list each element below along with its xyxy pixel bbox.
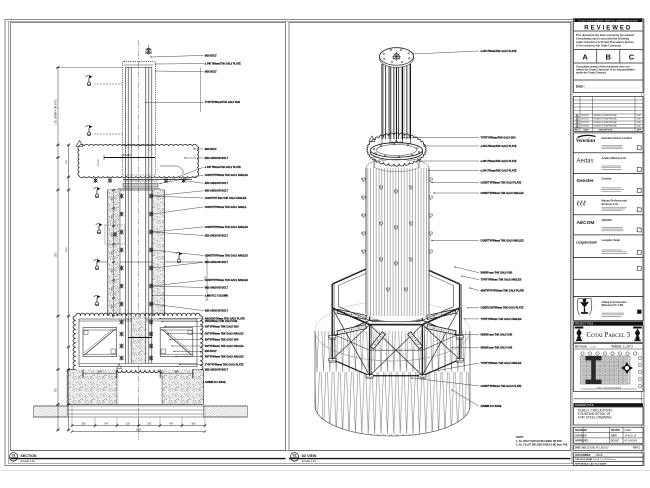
svg-text:50/TYP50mm THK GALV ANGLES: 50/TYP50mm THK GALV ANGLES (205, 333, 244, 336)
svg-text:1500: 1500 (56, 252, 58, 258)
svg-text:M16 ANCHOR BOLT: M16 ANCHOR BOLT (205, 234, 229, 237)
svg-text:02: 02 (293, 454, 297, 458)
svg-text:NOTE:: NOTE: (516, 435, 524, 439)
svg-text:315UB: 315UB (596, 455, 603, 457)
svg-text:Aedas: Aedas (577, 158, 594, 164)
svg-text:CONT/TYP50mm THK GALV PLATE: CONT/TYP50mm THK GALV PLATE (481, 385, 522, 388)
svg-text:a 300 750mmTHK GALV PLATE: a 300 750mmTHK GALV PLATE (481, 160, 517, 163)
svg-text:APP: APP (637, 129, 642, 132)
svg-text:PUBLIC CIRCULATION AREA: PUBLIC CIRCULATION AREA (597, 386, 622, 389)
svg-text:01: 01 (12, 454, 16, 458)
svg-text:Date :: Date : (576, 85, 585, 89)
svg-text:AECOM: AECOM (577, 220, 595, 226)
svg-text:50/TYP50mm THK GALV ANGLES: 50/TYP50mm THK GALV ANGLES (205, 345, 244, 348)
svg-text:DRAWN: DRAWN (611, 429, 620, 432)
svg-text:Venetian Orient Limited: Venetian Orient Limited (602, 136, 632, 140)
svg-text:13/07/15: 13/07/15 (581, 119, 590, 121)
svg-text:LWK: LWK (637, 119, 642, 121)
svg-text:50/50/5 mm THK GALV SHS: 50/50/5 mm THK GALV SHS (481, 347, 513, 350)
svg-text:50/50/5 mm THK GALV SHS: 50/50/5 mm THK GALV SHS (481, 333, 513, 336)
svg-text:CONT/TYP50mm THK GALV ANGLE: CONT/TYP50mm THK GALV ANGLE (205, 206, 247, 209)
svg-text:3: 3 (577, 122, 578, 124)
svg-text:1391 (VERIFY ON SITE): 1391 (VERIFY ON SITE) (56, 99, 58, 125)
svg-text:COTAI PARCEL 3: COTAI PARCEL 3 (586, 332, 630, 339)
svg-text:150x150mm THK GALV SHS: 150x150mm THK GALV SHS (205, 320, 238, 323)
svg-text:M16 ANCHOR BOLT: M16 ANCHOR BOLT (205, 182, 229, 185)
svg-text:DWG. NO.: DWG. NO. (575, 447, 587, 450)
svg-text:864: 864 (98, 371, 103, 374)
svg-text:1 : 1000: 1 : 1000 (589, 347, 597, 349)
svg-text:Consultant(s) and is accorded: Consultant(s) and is accorded the follow… (576, 36, 629, 40)
svg-text:3D VIEW: 3D VIEW (302, 454, 317, 458)
svg-text:TYP/TYP50mm THK GALV ANGLES: TYP/TYP50mm THK GALV ANGLES (481, 279, 522, 282)
svg-text:AS SHOWN: AS SHOWN (625, 440, 638, 443)
svg-text:A25MM R.C BASE: A25MM R.C BASE (481, 405, 502, 408)
svg-text:460/TYP/TYP50mm THK GALV PLATE: 460/TYP/TYP50mm THK GALV PLATE (481, 289, 525, 292)
svg-text:29/07/15: 29/07/15 (581, 122, 590, 124)
svg-text:DESCRIPTION: DESCRIPTION (599, 130, 613, 132)
svg-text:ISSUED FOR APPROVAL: ISSUED FOR APPROVAL (594, 114, 618, 117)
svg-text:M16 BOLT: M16 BOLT (205, 350, 217, 353)
svg-text:SCALE: SCALE (611, 440, 619, 443)
svg-text:AECOM: AECOM (602, 218, 613, 222)
svg-text:REV: REV (575, 130, 580, 132)
svg-text:50/TYP50mm THK GALV SHS: 50/TYP50mm THK GALV SHS (205, 339, 239, 342)
svg-text:LWKD: LWKD (625, 430, 632, 432)
svg-text:M16 ANCHOR BOLT: M16 ANCHOR BOLT (205, 261, 229, 264)
svg-text:B: B (605, 53, 611, 62)
svg-text:50/50/5 mm THK GALV SHS: 50/50/5 mm THK GALV SHS (481, 272, 513, 275)
svg-text:TYP/TYP50mm THK GALV ANGLES: TYP/TYP50mm THK GALV ANGLES (481, 362, 522, 365)
svg-text:under the Trade Contract.: under the Trade Contract. (576, 72, 607, 75)
svg-text:a 345 750mmTHK GALV PLATE: a 345 750mmTHK GALV PLATE (481, 50, 517, 53)
svg-text:Macau Professional: Macau Professional (602, 199, 627, 203)
svg-text:1: 1 (577, 115, 578, 117)
svg-text:5.4 for action by the Trade Co: 5.4 for action by the Trade Contractor. (576, 44, 622, 48)
svg-text:CONT/CONT50mm THK GALV PLATE: CONT/CONT50mm THK GALV PLATE (481, 307, 524, 310)
svg-text:REV C: REV C (633, 447, 641, 450)
svg-text:KEY PLAN: KEY PLAN (575, 346, 587, 349)
svg-text:This document has been revised: This document has been revised by the re… (576, 33, 634, 37)
svg-text:M16 ANCHOR BOLT: M16 ANCHOR BOLT (205, 157, 229, 160)
svg-text:Langdon Seah: Langdon Seah (602, 238, 621, 242)
svg-text:ISSUED FOR APPROVAL: ISSUED FOR APPROVAL (594, 121, 618, 124)
svg-text:CONT/TYP50mm THK GALV ANGLES: CONT/TYP50mm THK GALV ANGLES (205, 226, 248, 229)
svg-text:a 345 750mmTHK GALV PLATE: a 345 750mmTHK GALV PLATE (481, 145, 517, 148)
svg-text:SCALE 1:10: SCALE 1:10 (302, 459, 317, 463)
svg-text:CAD FILE NAME: CAD FILE NAME (575, 458, 593, 461)
svg-text:Services Ltd.: Services Ltd. (602, 202, 619, 206)
svg-text:(Macau) CO. LTD.: (Macau) CO. LTD. (602, 303, 624, 307)
svg-text:FOR STEEL DRAWING: FOR STEEL DRAWING (578, 415, 612, 419)
svg-text:50/TYP50mm THK GALV ANGLES: 50/TYP50mm THK GALV ANGLES (205, 356, 244, 359)
svg-text:1. ALL BOLT SHOULD BE FIXING O: 1. ALL BOLT SHOULD BE FIXING ON SITE. (516, 440, 563, 443)
svg-text:a 345 750mmTHK GALV PLATE: a 345 750mmTHK GALV PLATE (481, 169, 517, 172)
svg-text:DATE: DATE (611, 434, 618, 437)
svg-text:LWK: LWK (637, 122, 642, 124)
svg-text:LangdonSeah: LangdonSeah (576, 240, 597, 244)
svg-text:CONT/TYP50mm THK GALV PLATE: CONT/TYP50mm THK GALV PLATE (481, 181, 522, 184)
svg-text:TYP/TYP50mmTHK GALV SHS: TYP/TYP50mmTHK GALV SHS (205, 101, 241, 104)
svg-text:M16 ANCHOR BOLT: M16 ANCHOR BOLT (205, 286, 229, 289)
svg-text:TYP/TYP50mm THK GALV ANGLES: TYP/TYP50mm THK GALV ANGLES (481, 318, 522, 321)
svg-text:APPROVED: APPROVED (575, 440, 588, 443)
svg-text:CONT/TYP50mm THK GALV ANGLES: CONT/TYP50mm THK GALV ANGLES (481, 239, 524, 242)
svg-text:ISSUED FOR APPROVAL: ISSUED FOR APPROVAL (594, 125, 618, 128)
svg-text:CONT/TYP 50m THK GALV ANGLES: CONT/TYP 50m THK GALV ANGLES (205, 197, 247, 200)
svg-text:14-AUG-15: 14-AUG-15 (625, 434, 637, 437)
svg-text:a M20 R.C COLUMN: a M20 R.C COLUMN (205, 294, 228, 297)
svg-text:M16 BOLT: M16 BOLT (205, 148, 217, 151)
svg-text:M16 ANCHOR BOLT: M16 ANCHOR BOLT (205, 310, 229, 313)
svg-text:TYP/TYP50mm THK GALV PLATE: TYP/TYP50mm THK GALV PLATE (205, 363, 244, 366)
svg-text:M16 BOLT: M16 BOLT (205, 54, 217, 57)
svg-text:1000: 1000 (66, 247, 68, 253)
svg-text:CONT/TYP50mm THK GALV ANGLES: CONT/TYP50mm THK GALV ANGLES (205, 174, 248, 177)
svg-text:LWK: LWK (637, 126, 642, 128)
svg-text:REFERENCE CAD FILE NAME: REFERENCE CAD FILE NAME (575, 462, 607, 465)
svg-text:DO NOT SCALE DRAWING. VERIFY A: DO NOT SCALE DRAWING. VERIFY ALL DIMENSI… (578, 19, 638, 22)
svg-text:315UB_PD_B5010.dwg: 315UB_PD_B5010.dwg (593, 459, 617, 461)
svg-text:2890: 2890 (136, 430, 142, 432)
svg-text:864: 864 (175, 371, 180, 374)
svg-text:CONT/TYP50mm THK GALV ANGLES: CONT/TYP50mm THK GALV ANGLES (481, 192, 524, 195)
svg-text:A25MM R.C BASE: A25MM R.C BASE (205, 381, 226, 384)
svg-text:C: C (629, 53, 635, 62)
svg-text:M16 ANCHOR BOLT: M16 ANCHOR BOLT (205, 369, 229, 372)
svg-text:ℓℓℓ: ℓℓℓ (576, 198, 587, 207)
svg-text:SECTION: SECTION (21, 454, 37, 458)
svg-text:status referred to in Projec: status referred to in Project Procedures… (576, 40, 634, 44)
svg-text:REVIEWED: REVIEWED (584, 25, 632, 31)
svg-text:2. ALL FILLET WELDED SHOULD BE: 2. ALL FILLET WELDED SHOULD BE 6mm THK. (516, 443, 568, 446)
svg-text:A: A (582, 53, 588, 62)
svg-text:CHECKED: CHECKED (575, 435, 587, 437)
svg-text:a 345 750mmTHK GALV PLATE: a 345 750mmTHK GALV PLATE (205, 63, 241, 66)
svg-text:50 300: 50 300 (98, 159, 100, 166)
svg-text:DESIGNED: DESIGNED (575, 430, 587, 432)
svg-text:TYP/TYP50mmTHK GALV SHS: TYP/TYP50mmTHK GALV SHS (481, 136, 517, 139)
svg-text:Venetian: Venetian (576, 138, 595, 144)
svg-text:2: 2 (577, 119, 578, 121)
svg-text:14/08/15: 14/08/15 (581, 126, 590, 128)
svg-text:Gensler: Gensler (602, 177, 612, 181)
svg-text:DATE: DATE (583, 129, 589, 132)
svg-text:50/TYP50mm THK GALV SHS: 50/TYP50mm THK GALV SHS (205, 325, 239, 328)
svg-text:Aedas (Macau) Ltd.: Aedas (Macau) Ltd. (602, 156, 627, 160)
svg-text:PARCEL 1, LOT 2: PARCEL 1, LOT 2 (612, 345, 634, 349)
svg-text:315UB_PD_B5010: 315UB_PD_B5010 (587, 446, 609, 450)
svg-text:29/06/15: 29/06/15 (581, 115, 590, 117)
svg-text:CONT/TYP50mm THK GALV ANGLES: CONT/TYP50mm THK GALV ANGLES (205, 254, 248, 257)
svg-text:ISSUED FOR APPROVAL: ISSUED FOR APPROVAL (594, 118, 618, 121)
svg-text:4: 4 (577, 126, 578, 128)
svg-text:JOB NUMBER: JOB NUMBER (575, 455, 591, 457)
svg-text:M16 BOLT: M16 BOLT (205, 71, 217, 74)
svg-text:Gensler: Gensler (577, 178, 594, 183)
svg-text:Yadea Construction: Yadea Construction (602, 300, 628, 304)
svg-text:LWK: LWK (637, 115, 642, 117)
svg-text:M16 ANCHOR BOLT: M16 ANCHOR BOLT (205, 190, 229, 193)
svg-text:150x150: 150x150 (121, 154, 131, 157)
svg-text:a 345 750mmTHK GALV PLATE: a 345 750mmTHK GALV PLATE (205, 166, 241, 169)
svg-text:CONT/TYP50mm THK GALV ANGLES: CONT/TYP50mm THK GALV ANGLES (205, 279, 248, 282)
svg-text:SCALE 1:10: SCALE 1:10 (21, 459, 36, 463)
